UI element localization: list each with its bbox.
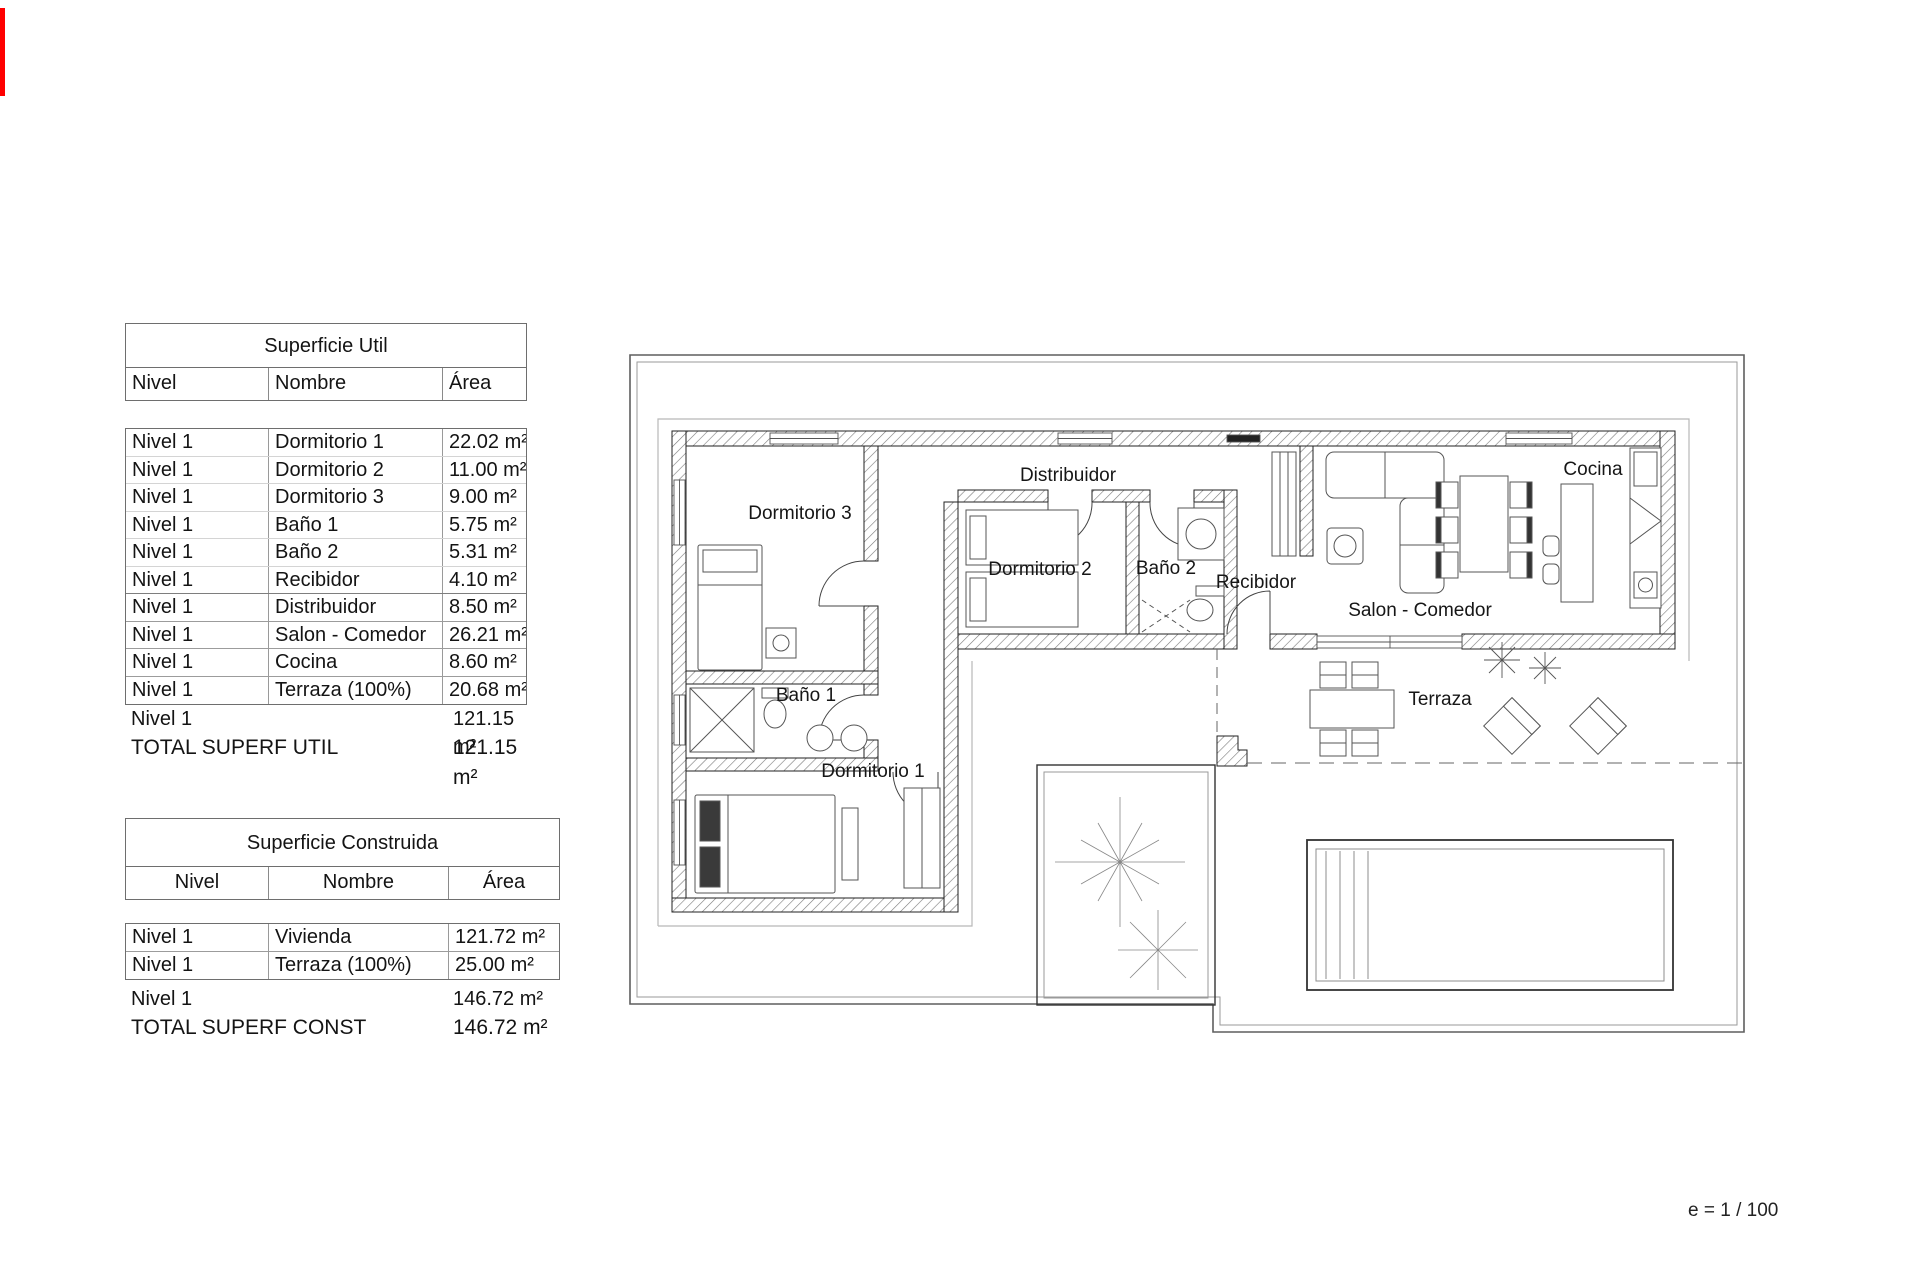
- room-label-cocina: Cocina: [1563, 459, 1623, 480]
- room-label-bano-1: Baño 1: [776, 685, 836, 706]
- subtotal-value: 121.15 m²: [447, 705, 527, 733]
- bed-dormitorio-3: [698, 545, 796, 670]
- cell-nivel: Nivel 1: [126, 677, 268, 705]
- table-row: Nivel 1 Terraza (100%) 20.68 m²: [126, 677, 526, 705]
- cell-nivel: Nivel 1: [126, 567, 268, 594]
- table-row: Nivel 1 Dormitorio 2 11.00 m²: [126, 457, 526, 485]
- cell-area: 11.00 m²: [442, 457, 526, 484]
- table-title: Superficie Construida: [126, 819, 559, 867]
- sofa: [1326, 452, 1444, 593]
- cell-area: 8.50 m²: [442, 594, 526, 621]
- cell-area: 8.60 m²: [442, 649, 526, 676]
- red-edge-mark: [0, 8, 5, 96]
- cell-area: 26.21 m²: [442, 622, 526, 649]
- cell-nombre: Distribuidor: [268, 594, 442, 621]
- total-row: TOTAL SUPERF CONST 146.72 m²: [125, 1013, 560, 1043]
- cell-nivel: Nivel 1: [126, 924, 268, 951]
- cell-nombre: Vivienda: [268, 924, 448, 951]
- cell-nivel: Nivel 1: [126, 594, 268, 621]
- room-label-distribuidor: Distribuidor: [1020, 465, 1117, 486]
- subtotal-label: Nivel 1: [125, 705, 447, 733]
- total-label: TOTAL SUPERF CONST: [125, 1013, 447, 1043]
- subtotal-label: Nivel 1: [125, 985, 447, 1013]
- cell-nivel: Nivel 1: [126, 649, 268, 676]
- cell-area: 25.00 m²: [448, 952, 559, 980]
- col-header-nombre: Nombre: [268, 867, 448, 899]
- cell-nivel: Nivel 1: [126, 457, 268, 484]
- room-label-recibidor: Recibidor: [1216, 572, 1297, 593]
- cell-nivel: Nivel 1: [126, 484, 268, 511]
- col-header-nivel: Nivel: [126, 368, 268, 400]
- cell-area: 5.75 m²: [442, 512, 526, 539]
- table-row: Nivel 1 Recibidor 4.10 m²: [126, 567, 526, 595]
- table-row: Nivel 1 Dormitorio 1 22.02 m²: [126, 429, 526, 457]
- table-title: Superficie Util: [126, 324, 526, 368]
- table-row: Nivel 1 Dormitorio 3 9.00 m²: [126, 484, 526, 512]
- drawing-sheet: Superficie Util Nivel Nombre Área Nivel …: [0, 0, 1920, 1280]
- cell-nombre: Dormitorio 3: [268, 484, 442, 511]
- cell-nombre: Salon - Comedor: [268, 622, 442, 649]
- cell-nombre: Terraza (100%): [268, 952, 448, 980]
- col-header-area: Área: [442, 368, 526, 400]
- table-superficie-construida: Superficie Construida Nivel Nombre Área …: [125, 818, 560, 1043]
- column-header-row: Nivel Nombre Área: [126, 867, 559, 899]
- table-gap: [125, 900, 560, 923]
- table-row: Nivel 1 Vivienda 121.72 m²: [126, 924, 559, 952]
- cell-area: 4.10 m²: [442, 567, 526, 594]
- tree-icon: [1055, 797, 1185, 927]
- col-header-nombre: Nombre: [268, 368, 442, 400]
- cell-nivel: Nivel 1: [126, 539, 268, 566]
- lounge-chairs: [1484, 698, 1627, 755]
- table-row: Nivel 1 Cocina 8.60 m²: [126, 649, 526, 677]
- table-header-block: Superficie Construida Nivel Nombre Área: [125, 818, 560, 900]
- cell-area: 20.68 m²: [442, 677, 526, 705]
- terrace-table-set: [1310, 662, 1394, 756]
- recibidor-closet: [1272, 452, 1296, 556]
- room-label-terraza: Terraza: [1408, 689, 1472, 710]
- room-label-dormitorio-1: Dormitorio 1: [821, 761, 924, 782]
- col-header-nivel: Nivel: [126, 867, 268, 899]
- column-header-row: Nivel Nombre Área: [126, 368, 526, 400]
- total-value: 121.15 m²: [447, 733, 527, 763]
- subtotal-row: Nivel 1 121.15 m²: [125, 705, 527, 733]
- scale-note: e = 1 / 100: [1688, 1200, 1778, 1222]
- dining-table: [1436, 476, 1532, 578]
- table-row: Nivel 1 Distribuidor 8.50 m²: [126, 594, 526, 622]
- table-header-block: Superficie Util Nivel Nombre Área: [125, 323, 527, 401]
- cell-nombre: Terraza (100%): [268, 677, 442, 705]
- cell-nivel: Nivel 1: [126, 512, 268, 539]
- floor-plan: Dormitorio 3 Distribuidor Dormitorio 2 B…: [600, 330, 1790, 1250]
- cell-area: 22.02 m²: [442, 429, 526, 456]
- cell-nombre: Baño 2: [268, 539, 442, 566]
- subtotal-value: 146.72 m²: [447, 985, 560, 1013]
- cell-nombre: Dormitorio 2: [268, 457, 442, 484]
- pool-steps: [1326, 851, 1368, 979]
- cell-nombre: Dormitorio 1: [268, 429, 442, 456]
- table-body: Nivel 1 Vivienda 121.72 m² Nivel 1 Terra…: [125, 923, 560, 980]
- room-label-dormitorio-2: Dormitorio 2: [988, 559, 1091, 580]
- cell-nivel: Nivel 1: [126, 952, 268, 980]
- table-row: Nivel 1 Terraza (100%) 25.00 m²: [126, 952, 559, 980]
- tree-planter: [1037, 765, 1215, 1005]
- total-value: 146.72 m²: [447, 1013, 560, 1043]
- room-label-bano-2: Baño 2: [1136, 558, 1196, 579]
- cell-area: 9.00 m²: [442, 484, 526, 511]
- shrub-icon: [1118, 910, 1198, 990]
- subtotal-row: Nivel 1 146.72 m²: [125, 985, 560, 1013]
- table-body: Nivel 1 Dormitorio 1 22.02 m² Nivel 1 Do…: [125, 428, 527, 705]
- cell-nombre: Cocina: [268, 649, 442, 676]
- cell-nivel: Nivel 1: [126, 429, 268, 456]
- cell-nombre: Baño 1: [268, 512, 442, 539]
- table-row: Nivel 1 Salon - Comedor 26.21 m²: [126, 622, 526, 650]
- col-header-area: Área: [448, 867, 559, 899]
- room-label-salon-comedor: Salon - Comedor: [1348, 600, 1492, 621]
- cell-area: 5.31 m²: [442, 539, 526, 566]
- terrace-boundary: [1217, 649, 1744, 766]
- total-label: TOTAL SUPERF UTIL: [125, 733, 447, 763]
- room-label-dormitorio-3: Dormitorio 3: [748, 503, 851, 524]
- bed-dormitorio-1: [695, 788, 940, 893]
- table-gap: [125, 401, 527, 428]
- total-row: TOTAL SUPERF UTIL 121.15 m²: [125, 733, 527, 763]
- table-row: Nivel 1 Baño 1 5.75 m²: [126, 512, 526, 540]
- table-row: Nivel 1 Baño 2 5.31 m²: [126, 539, 526, 567]
- cell-nombre: Recibidor: [268, 567, 442, 594]
- cell-area: 121.72 m²: [448, 924, 559, 951]
- cell-nivel: Nivel 1: [126, 622, 268, 649]
- pool: [1307, 840, 1673, 990]
- table-superficie-util: Superficie Util Nivel Nombre Área Nivel …: [125, 323, 527, 763]
